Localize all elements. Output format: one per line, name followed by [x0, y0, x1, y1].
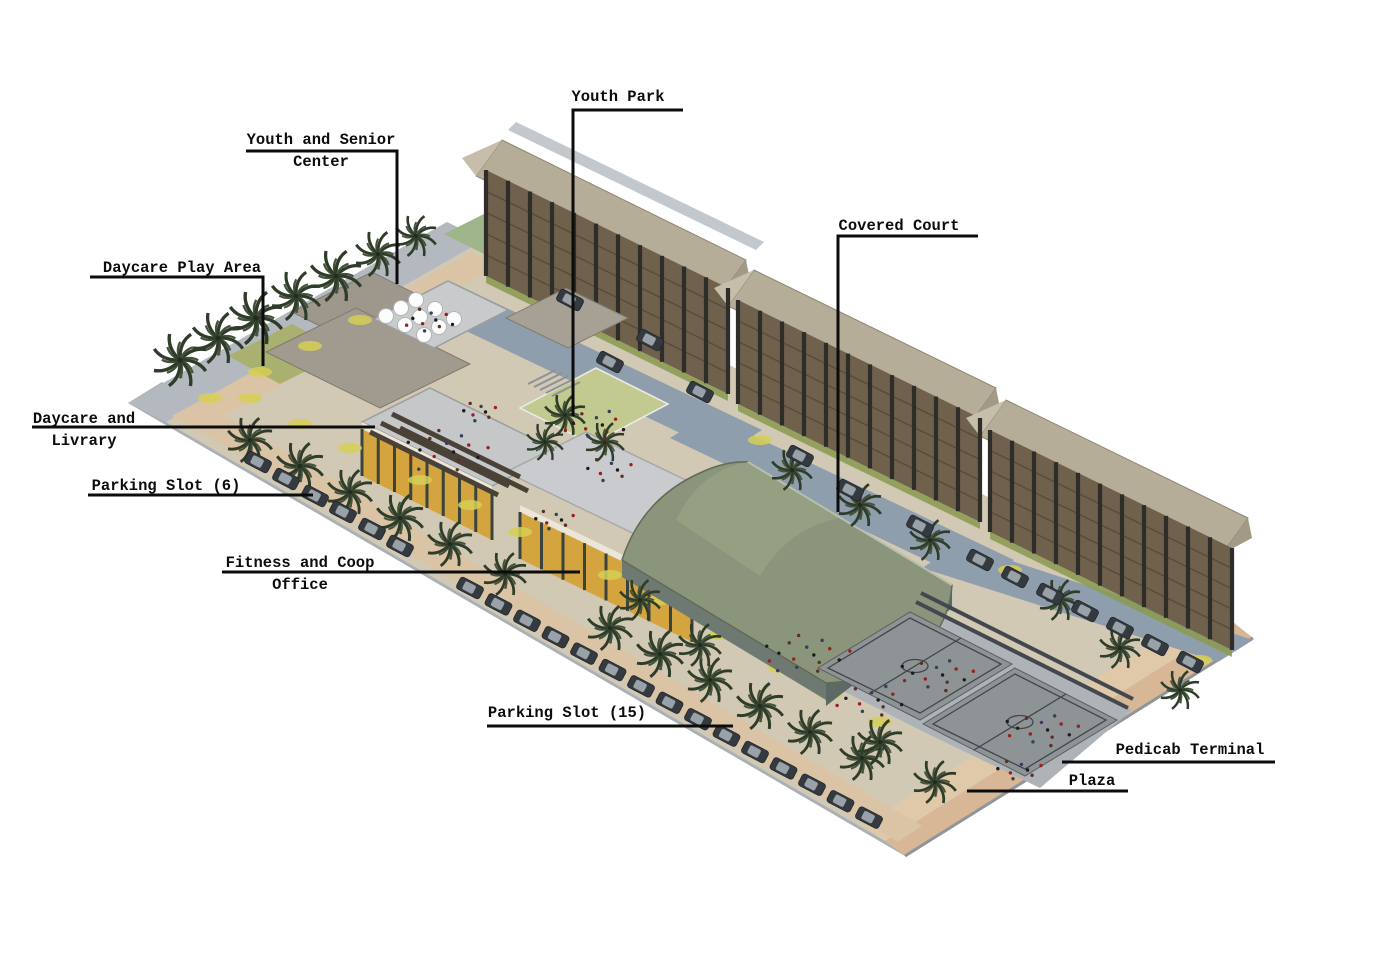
person	[1009, 771, 1012, 774]
person	[610, 462, 613, 465]
person	[605, 430, 608, 433]
person	[1031, 740, 1034, 743]
person	[1008, 734, 1011, 737]
person	[601, 423, 604, 426]
person	[564, 524, 567, 527]
person	[564, 429, 567, 432]
person	[584, 427, 587, 430]
label-fitness-and-coop-office-line-2: Office	[272, 576, 328, 594]
person	[788, 641, 791, 644]
person	[858, 702, 861, 705]
person	[1006, 720, 1009, 723]
person	[777, 651, 780, 654]
person	[580, 412, 583, 415]
person	[411, 317, 414, 320]
person	[595, 458, 598, 461]
person	[608, 410, 611, 413]
person	[456, 468, 459, 471]
person	[435, 464, 438, 467]
person	[599, 472, 602, 475]
person	[428, 437, 431, 440]
person	[407, 441, 410, 444]
person	[861, 710, 864, 713]
person	[622, 428, 625, 431]
person	[797, 634, 800, 637]
flower-bed	[248, 367, 272, 377]
person	[901, 665, 904, 668]
person	[457, 458, 460, 461]
person	[891, 692, 894, 695]
person	[996, 767, 999, 770]
person	[462, 409, 465, 412]
person	[792, 657, 795, 660]
person	[884, 685, 887, 688]
person	[1025, 717, 1028, 720]
label-covered-court: Covered Court	[839, 217, 960, 235]
person	[972, 669, 975, 672]
person	[903, 679, 906, 682]
person	[429, 311, 432, 314]
person	[1020, 763, 1023, 766]
person	[409, 457, 412, 460]
person	[1050, 735, 1053, 738]
person	[944, 689, 947, 692]
person	[432, 455, 435, 458]
person	[1046, 728, 1049, 731]
person	[467, 443, 470, 446]
person	[460, 434, 463, 437]
person	[534, 517, 537, 520]
person	[571, 514, 574, 517]
person	[805, 645, 808, 648]
flower-bed	[458, 500, 482, 510]
person	[926, 685, 929, 688]
person	[479, 405, 482, 408]
person	[1053, 714, 1056, 717]
person	[545, 521, 548, 524]
person	[1026, 768, 1029, 771]
person	[828, 647, 831, 650]
person	[595, 416, 598, 419]
person	[601, 479, 604, 482]
person	[935, 666, 938, 669]
person	[604, 438, 607, 441]
roofdeck-round-table	[413, 310, 428, 325]
person	[476, 456, 479, 459]
person	[924, 677, 927, 680]
person	[486, 446, 489, 449]
person	[586, 467, 589, 470]
person	[586, 435, 589, 438]
person	[1049, 744, 1052, 747]
person	[838, 658, 841, 661]
person	[1016, 727, 1019, 730]
person	[1077, 724, 1080, 727]
person	[820, 639, 823, 642]
label-youth-and-senior-center: Youth and Senior	[247, 131, 396, 149]
person	[835, 704, 838, 707]
person	[572, 422, 575, 425]
person	[963, 678, 966, 681]
flower-bed	[508, 527, 532, 537]
person	[405, 324, 408, 327]
person	[451, 323, 454, 326]
person	[818, 661, 821, 664]
person	[876, 698, 879, 701]
label-fitness-and-coop-office: Fitness and Coop	[226, 554, 375, 572]
person	[1068, 733, 1071, 736]
person	[484, 410, 487, 413]
label-parking-slot-15: Parking Slot (15)	[488, 704, 646, 722]
person	[417, 467, 420, 470]
person	[434, 318, 437, 321]
roofdeck-round-table	[428, 302, 443, 317]
flower-bed	[338, 443, 362, 453]
person	[560, 518, 563, 521]
person	[555, 513, 558, 516]
person	[768, 659, 771, 662]
person	[620, 475, 623, 478]
person	[421, 322, 424, 325]
person	[616, 468, 619, 471]
person	[1029, 732, 1032, 735]
flower-bed	[238, 393, 262, 403]
person	[471, 413, 474, 416]
person	[848, 649, 851, 652]
person	[629, 463, 632, 466]
person	[423, 329, 426, 332]
person	[795, 666, 798, 669]
person	[881, 705, 884, 708]
person	[948, 659, 951, 662]
person	[445, 442, 448, 445]
person	[1039, 764, 1042, 767]
person	[880, 713, 883, 716]
person	[437, 429, 440, 432]
label-youth-and-senior-center-line-2: Center	[293, 153, 349, 171]
person	[1030, 774, 1033, 777]
person	[870, 691, 873, 694]
person	[941, 673, 944, 676]
flower-bed	[598, 570, 622, 580]
person	[452, 450, 455, 453]
label-youth-park: Youth Park	[571, 88, 664, 106]
person	[812, 653, 815, 656]
person	[776, 669, 779, 672]
person	[911, 672, 914, 675]
person	[1005, 760, 1008, 763]
person	[418, 308, 421, 311]
person	[445, 313, 448, 316]
flower-bed	[408, 475, 432, 485]
person	[487, 416, 490, 419]
site-rendering-page: Youth ParkYouth and SeniorCenterCovered …	[0, 0, 1400, 956]
person	[438, 325, 441, 328]
person	[945, 680, 948, 683]
person	[542, 510, 545, 513]
flower-bed	[298, 341, 322, 351]
roofdeck-round-table	[394, 301, 409, 316]
person	[614, 417, 617, 420]
person	[494, 406, 497, 409]
person	[920, 662, 923, 665]
person	[473, 419, 476, 422]
person	[900, 703, 903, 706]
label-parking-slot-6: Parking Slot (6)	[92, 477, 241, 495]
person	[468, 402, 471, 405]
person	[765, 644, 768, 647]
person	[816, 669, 819, 672]
person	[854, 687, 857, 690]
person	[1040, 721, 1043, 724]
label-daycare-play-area: Daycare Play Area	[103, 259, 261, 277]
roofdeck-round-table	[379, 309, 394, 324]
flower-bed	[748, 435, 772, 445]
flower-bed	[198, 393, 222, 403]
flower-bed	[348, 315, 372, 325]
label-daycare-and-livrary-line-2: Livrary	[51, 432, 116, 450]
person	[1011, 777, 1014, 780]
label-plaza: Plaza	[1069, 772, 1116, 790]
person	[844, 697, 847, 700]
person	[954, 667, 957, 670]
person	[418, 448, 421, 451]
roofdeck-round-table	[409, 293, 424, 308]
person	[1059, 722, 1062, 725]
person	[547, 527, 550, 530]
label-daycare-and-livrary: Daycare and	[33, 410, 135, 428]
label-pedicab-terminal: Pedicab Terminal	[1116, 741, 1265, 759]
